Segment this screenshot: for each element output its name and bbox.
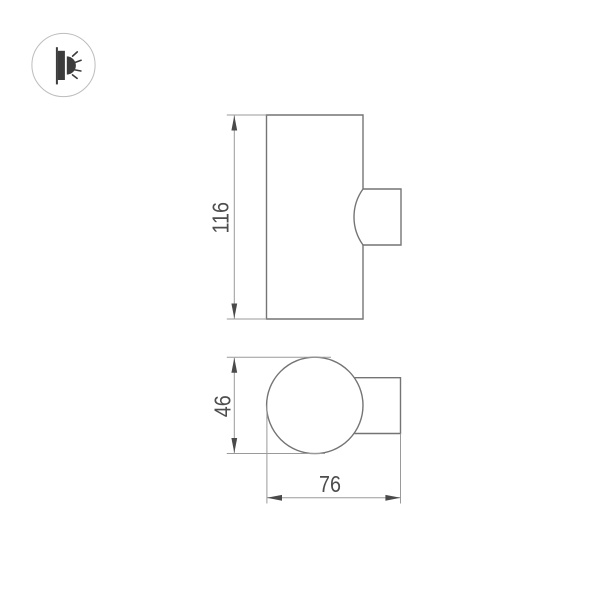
svg-text:76: 76 [319, 470, 341, 497]
svg-text:46: 46 [209, 395, 236, 417]
svg-text:116: 116 [207, 202, 234, 233]
